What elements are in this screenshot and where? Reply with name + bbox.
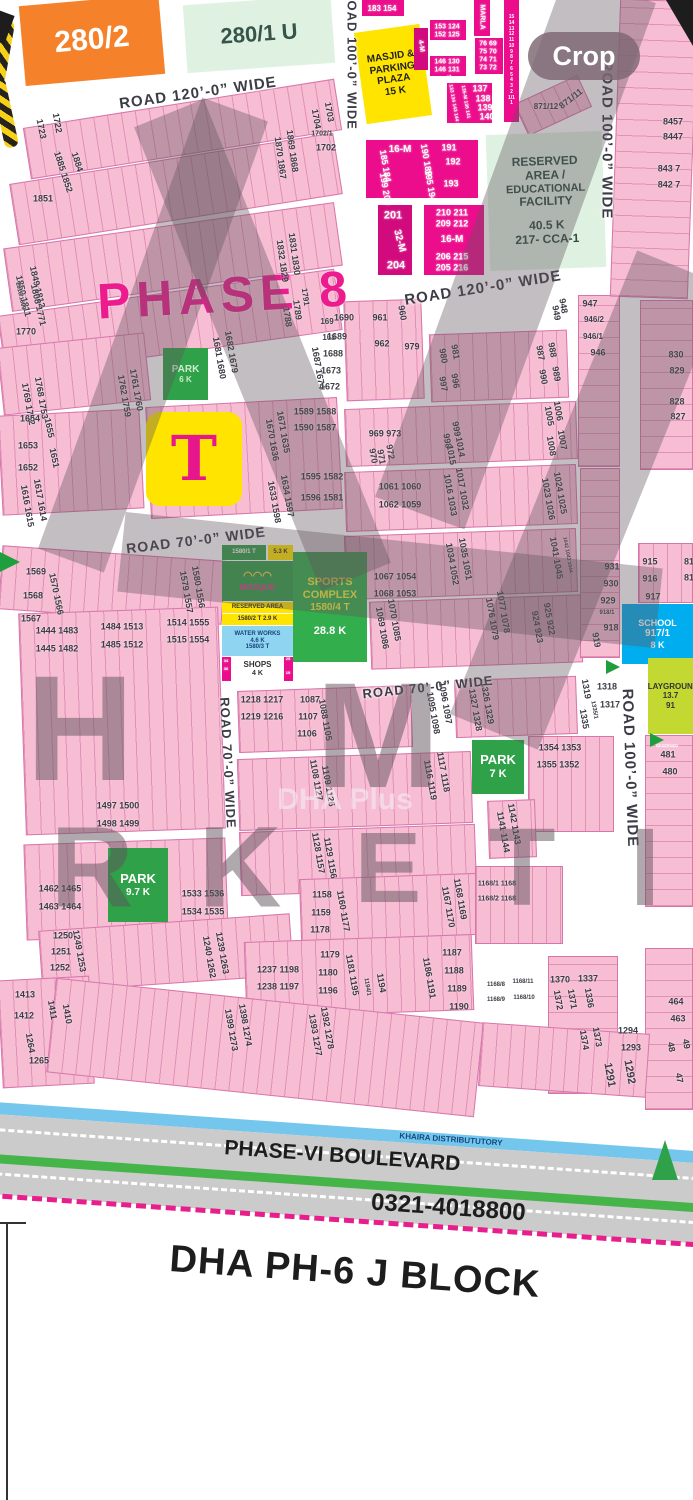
plot-number: 464 [668,998,683,1007]
plot-number: 75 70 [479,49,497,56]
plot-number: 1158 [312,891,332,900]
direction-arrow [0,552,20,572]
plot-number: 1335 [578,708,590,729]
plot-number: 183 154 [368,5,397,13]
plot-number: 1355 1352 [537,761,580,770]
plot-number: 47 [674,1072,685,1083]
plot-number: 1672 [320,383,340,392]
plot-number: 1851 [33,195,53,204]
plot-number: 960 [396,305,407,321]
box-label: 13.7 [663,691,679,700]
plot-number: 480 [662,768,677,777]
plot-number: 1237 1198 [257,966,299,975]
block-280-2: 280/2 [19,0,165,86]
plot-number: 1238 1197 [257,983,299,992]
plot-number: 1188 [444,967,464,976]
plot-number: 842 7 [658,181,681,190]
plot-number: 16-M [389,145,412,155]
plot-number: 34 [224,659,228,663]
plot-number: 1219 1216 [241,713,284,722]
plot-number: 990 [537,369,548,385]
plot-number: 137 [472,85,487,94]
plot-number: 81 [684,558,693,567]
plot-map: 280/2280/1 UMASJID &PARKINGPLAZA15 KRESE… [0,0,693,1500]
plot-number: 1789 [291,299,303,320]
box-label: PLAYGROUND [648,682,693,691]
plot-number: 1689 [327,333,347,342]
t-marker: T [146,412,242,506]
plot-number: 1265 [29,1057,49,1066]
park-7k: PARK7 K [472,740,524,794]
box-label: 28.8 K [314,625,346,638]
plot-number: 915 [642,558,657,567]
plot-number: 16-M [441,235,464,245]
plot-number: 1337 [578,975,598,984]
crop-button[interactable]: Crop [528,32,640,80]
plot-number: 1189 [447,985,467,994]
plot-number: 201 [384,211,402,222]
plot-number: 1515 1554 [167,636,210,645]
plot-number: 25 [286,657,290,661]
plot-number: 1412 [14,1012,34,1021]
plot-number: 1335/1 [589,700,598,719]
box-label: 280/1 U [220,19,299,50]
plot-number: 947 [582,300,597,309]
plot-number: 1514 1555 [167,619,210,628]
watermark-letter: K [198,811,281,926]
box-label: 4 K [252,670,263,678]
plot-number: 1567 [21,615,41,624]
plot-number: 1190 [449,1003,469,1012]
plot-number: 1251 [51,948,71,957]
plot-number: 1654 [20,415,40,424]
plot-number: 8457 [663,118,683,127]
plot-number: DHA PH-6 J BLOCK [168,1240,541,1304]
plot-number: 193 [443,180,458,189]
plot-number: 1318 [597,683,617,692]
plot-number: 843 7 [658,165,681,174]
plot-number: 153 124 [434,24,459,31]
plot-number: 1652 [18,464,38,473]
plot-number: 1250 [53,932,73,941]
plot-number: 949 [550,305,561,321]
plot-number: 481 [660,751,675,760]
plot-number: 209 212 [436,220,469,229]
plot-number: 1568 [23,592,43,601]
playground: PLAYGROUND13.791 [648,658,693,734]
plot-number: 169 [320,318,333,326]
plot-number: 1187 [442,949,462,958]
plot-number: 152 125 [434,32,459,39]
plot-number: 463 [670,1015,685,1024]
plot-number: 1702/1 [311,131,332,138]
box-label: 1 [510,101,513,107]
plot-number: 146 130 [434,59,459,66]
plot-number: 1688 [323,350,343,359]
watermark-letter: T [488,813,555,923]
water-works: WATER WORKS4.6 K1580/3 T [222,626,293,656]
plot-number: 76 69 [479,41,497,48]
box-label: 91 [666,701,675,710]
plot-number: RESERVED [577,676,599,680]
plot-number: 1293 [621,1044,641,1053]
plot-number: 1218 1217 [241,696,284,705]
plot-number: 989 [550,366,561,382]
boundary-line [6,1222,8,1500]
box-label: 15 K [384,84,407,98]
plot-number: 1159 [311,909,331,918]
plot-number: 979 [404,343,419,352]
railway-boundary-marker [0,77,19,148]
plot-number: 73 72 [479,65,497,72]
watermark-brand: DHA Plus [277,785,413,815]
plot-number: 19 [286,671,290,675]
plot-number: 1178 [310,926,330,935]
plot-number: 1653 [18,442,38,451]
road-label: ROAD 100’-0” WIDE [346,0,359,130]
plot-number: 1196 [318,987,338,996]
box-label: 7 K [489,768,506,781]
plot-number: 74 71 [479,57,497,64]
box-label: SHOPS [243,660,271,669]
plot-number: 946/2 [584,316,604,324]
plot-number: 1168/8 [487,982,505,988]
box-label: 280/2 [53,20,131,61]
plot-number: 1569 [26,568,46,577]
commercial-col-1-15: 151413121110987654321/11 [504,0,519,122]
boundary-line [0,1222,26,1224]
box-label: 1580/2 T 2.9 K [238,616,278,623]
plot-number: 1252 [50,964,70,973]
box-label: 4.6 K [250,638,264,645]
plot-number: 961 [372,314,387,323]
plot-number: 962 [374,340,389,349]
direction-arrow [606,660,620,674]
plot-number: 81 [684,574,693,583]
plot-block [645,948,693,1110]
plot-number: 204 [387,261,405,272]
plot-number: 1294 [618,1027,638,1036]
plot-number: 1444 1483 [36,627,79,636]
box-label: 6 K [179,375,191,384]
tree-icon [652,1140,678,1180]
plot-number: 146 131 [434,67,459,74]
plot-number: 1354 1353 [539,744,582,753]
plot-number: 1106 [297,730,317,739]
watermark-letter: E [355,818,422,918]
plot-number: MARLA [479,4,486,29]
plot-number: 1770 [16,328,36,337]
plot-number: 1370 [550,976,570,985]
plot-number: 8447 [663,133,683,142]
plot-number: 1168/9 [487,997,505,1003]
plot-number: 1180 [318,969,338,978]
plot-number: 988 [546,342,557,358]
plot-number: 1690 [334,314,354,323]
plot-number: 1702 [316,144,336,153]
plot-number: 1413 [15,991,35,1000]
watermark-letter: H [26,653,134,803]
box-label: 1580/3 T [246,644,270,651]
box-label: PARK [480,753,516,768]
plot-number: 1673 [321,367,341,376]
watermark-letter: I [630,813,661,923]
box-label: WATER WORKS [235,631,281,638]
watermark-letter: R [50,811,133,926]
plot-number: 191 [441,144,456,153]
plot-number: 1179 [320,951,340,960]
shops: SHOPS4 K [231,657,284,681]
plot-number: 1168/10 [513,995,534,1001]
box-label: T [171,423,217,494]
plot-1580-2: 1580/2 T 2.9 K [222,614,293,625]
plot-number: 1317 [600,701,620,710]
plot-number: 1319 [580,678,592,699]
plot-number: 192 [445,158,460,167]
plot-number: 987 [534,345,545,361]
plot-number: 48 [666,1041,677,1052]
plot-number: 140 [479,113,494,122]
plot-number: 49 [681,1038,692,1049]
block-280-1u: 280/1 U [183,0,335,73]
direction-arrow [650,733,664,747]
plot-number: 36 [224,667,228,671]
plot-number: 210 211 [436,209,468,218]
plot-number: 1484 1513 [101,623,144,632]
phase-vi-boulevard: KHAIRA DISTRIBUTUTORY PHASE-VI BOULEVARD… [0,1101,693,1252]
plot-number: 1168/11 [512,979,533,985]
